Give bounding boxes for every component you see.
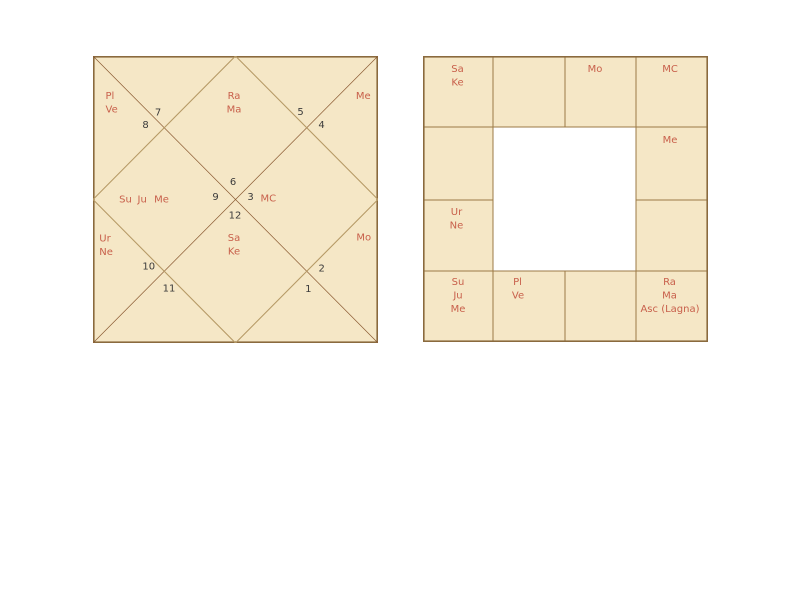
label-midheaven: MC <box>260 194 276 205</box>
north-indian-chart: 7 8 5 4 6 9 3 12 10 11 2 1 Pl Ve Ra Ma M… <box>93 56 378 343</box>
cell-r2c3 <box>636 200 708 271</box>
planet-label-mercury: Me <box>154 195 169 206</box>
planet-label-mars: Ma <box>227 105 242 116</box>
planet-label-jupiter: Ju <box>137 195 147 206</box>
planet-label-uranus: Ur <box>99 234 111 245</box>
house-number-3: 3 <box>247 192 253 203</box>
house-number-6: 6 <box>230 177 236 188</box>
planet-label-rahu: Ra <box>228 91 241 102</box>
label-ascendant-lagna: Asc (Lagna) <box>640 304 699 315</box>
house-number-12: 12 <box>229 211 242 222</box>
cell-r3c2 <box>565 271 636 342</box>
house-number-10: 10 <box>142 262 155 273</box>
planet-label-ketu: Ke <box>228 247 240 258</box>
planet-label-venus: Ve <box>106 105 118 116</box>
planet-label-mercury-s2: Me <box>663 135 678 146</box>
planet-label-saturn: Sa <box>228 233 240 244</box>
planet-label-saturn-s: Sa <box>451 64 463 75</box>
label-midheaven-s: MC <box>662 64 678 75</box>
planet-label-mercury-tr: Me <box>356 91 371 102</box>
house-number-2: 2 <box>319 264 325 275</box>
page: 7 8 5 4 6 9 3 12 10 11 2 1 Pl Ve Ra Ma M… <box>0 0 800 600</box>
planet-label-neptune-s: Ne <box>450 221 464 232</box>
planet-label-uranus-s: Ur <box>451 207 463 218</box>
house-number-4: 4 <box>318 120 324 131</box>
planet-label-mercury-s: Me <box>451 304 466 315</box>
cell-r0c1 <box>493 57 565 128</box>
planet-label-venus-s: Ve <box>512 291 524 302</box>
house-number-8: 8 <box>142 120 148 131</box>
planet-label-sun: Su <box>119 195 132 206</box>
planet-label-neptune: Ne <box>99 247 113 258</box>
cell-r3c1 <box>493 271 565 342</box>
house-number-11: 11 <box>163 284 176 295</box>
house-number-5: 5 <box>297 107 303 118</box>
house-number-9: 9 <box>212 192 218 203</box>
cell-r1c0 <box>424 127 494 200</box>
planet-label-rahu-s: Ra <box>663 277 676 288</box>
planet-label-ketu-s: Ke <box>451 78 463 89</box>
planet-label-jupiter-s: Ju <box>452 291 462 302</box>
planet-label-moon-s: Mo <box>588 64 603 75</box>
planet-label-mars-s: Ma <box>662 291 677 302</box>
planet-label-pluto-s: Pl <box>513 277 522 288</box>
planet-label-sun-s: Su <box>452 277 465 288</box>
south-indian-chart: Sa Ke Mo MC Me Ur Ne Su Ju Me Pl Ve Ra M… <box>423 56 708 342</box>
house-number-7: 7 <box>155 108 161 119</box>
planet-label-pluto: Pl <box>106 91 115 102</box>
planet-label-moon: Mo <box>356 233 371 244</box>
house-number-1: 1 <box>305 284 311 295</box>
